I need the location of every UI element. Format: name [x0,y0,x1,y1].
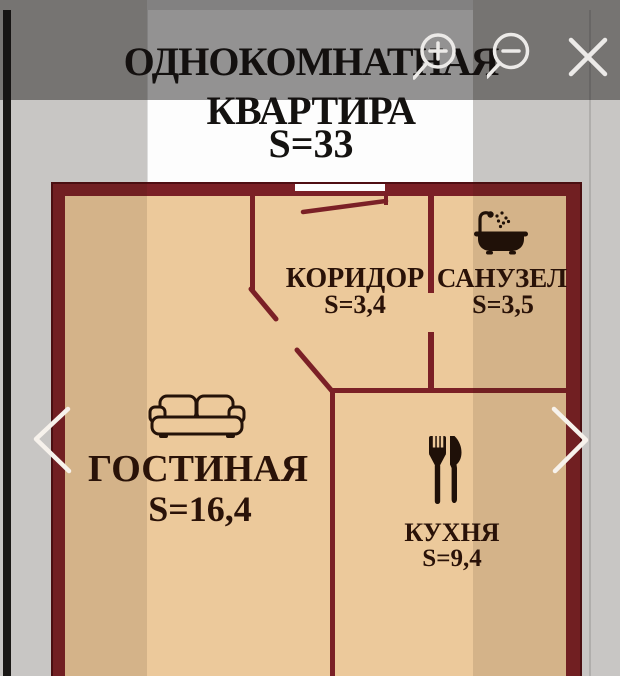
bathroom-partition-wall-lower [428,332,434,389]
zoom-out-icon [487,27,537,81]
entrance-door-opening [295,184,385,191]
chevron-right-icon [542,396,598,484]
zoom-in-icon [413,26,463,82]
corridor-area: S=3,4 [324,292,386,318]
carousel-dim-right [473,0,620,676]
zoom-out-button[interactable] [487,27,537,81]
next-photo-button[interactable] [542,396,598,484]
bathroom-partition-wall-upper [428,196,434,293]
plan-title-total-area: S=33 [268,124,353,164]
chevron-left-icon [22,396,78,484]
corridor-partition-wall [250,196,255,290]
photo-viewer: ГОСТИНАЯ S=16,4 КОРИДОР S=3,4 САНУЗЕЛ S=… [0,0,620,676]
zoom-in-button[interactable] [413,26,463,82]
previous-photo-button[interactable] [22,396,78,484]
kitchen-partition-wall [330,391,335,676]
carousel-dim-left [0,0,147,676]
close-icon [566,35,610,79]
corridor-label: КОРИДОР [286,265,424,293]
close-button[interactable] [566,35,610,79]
living-room-area: S=16,4 [148,491,252,527]
